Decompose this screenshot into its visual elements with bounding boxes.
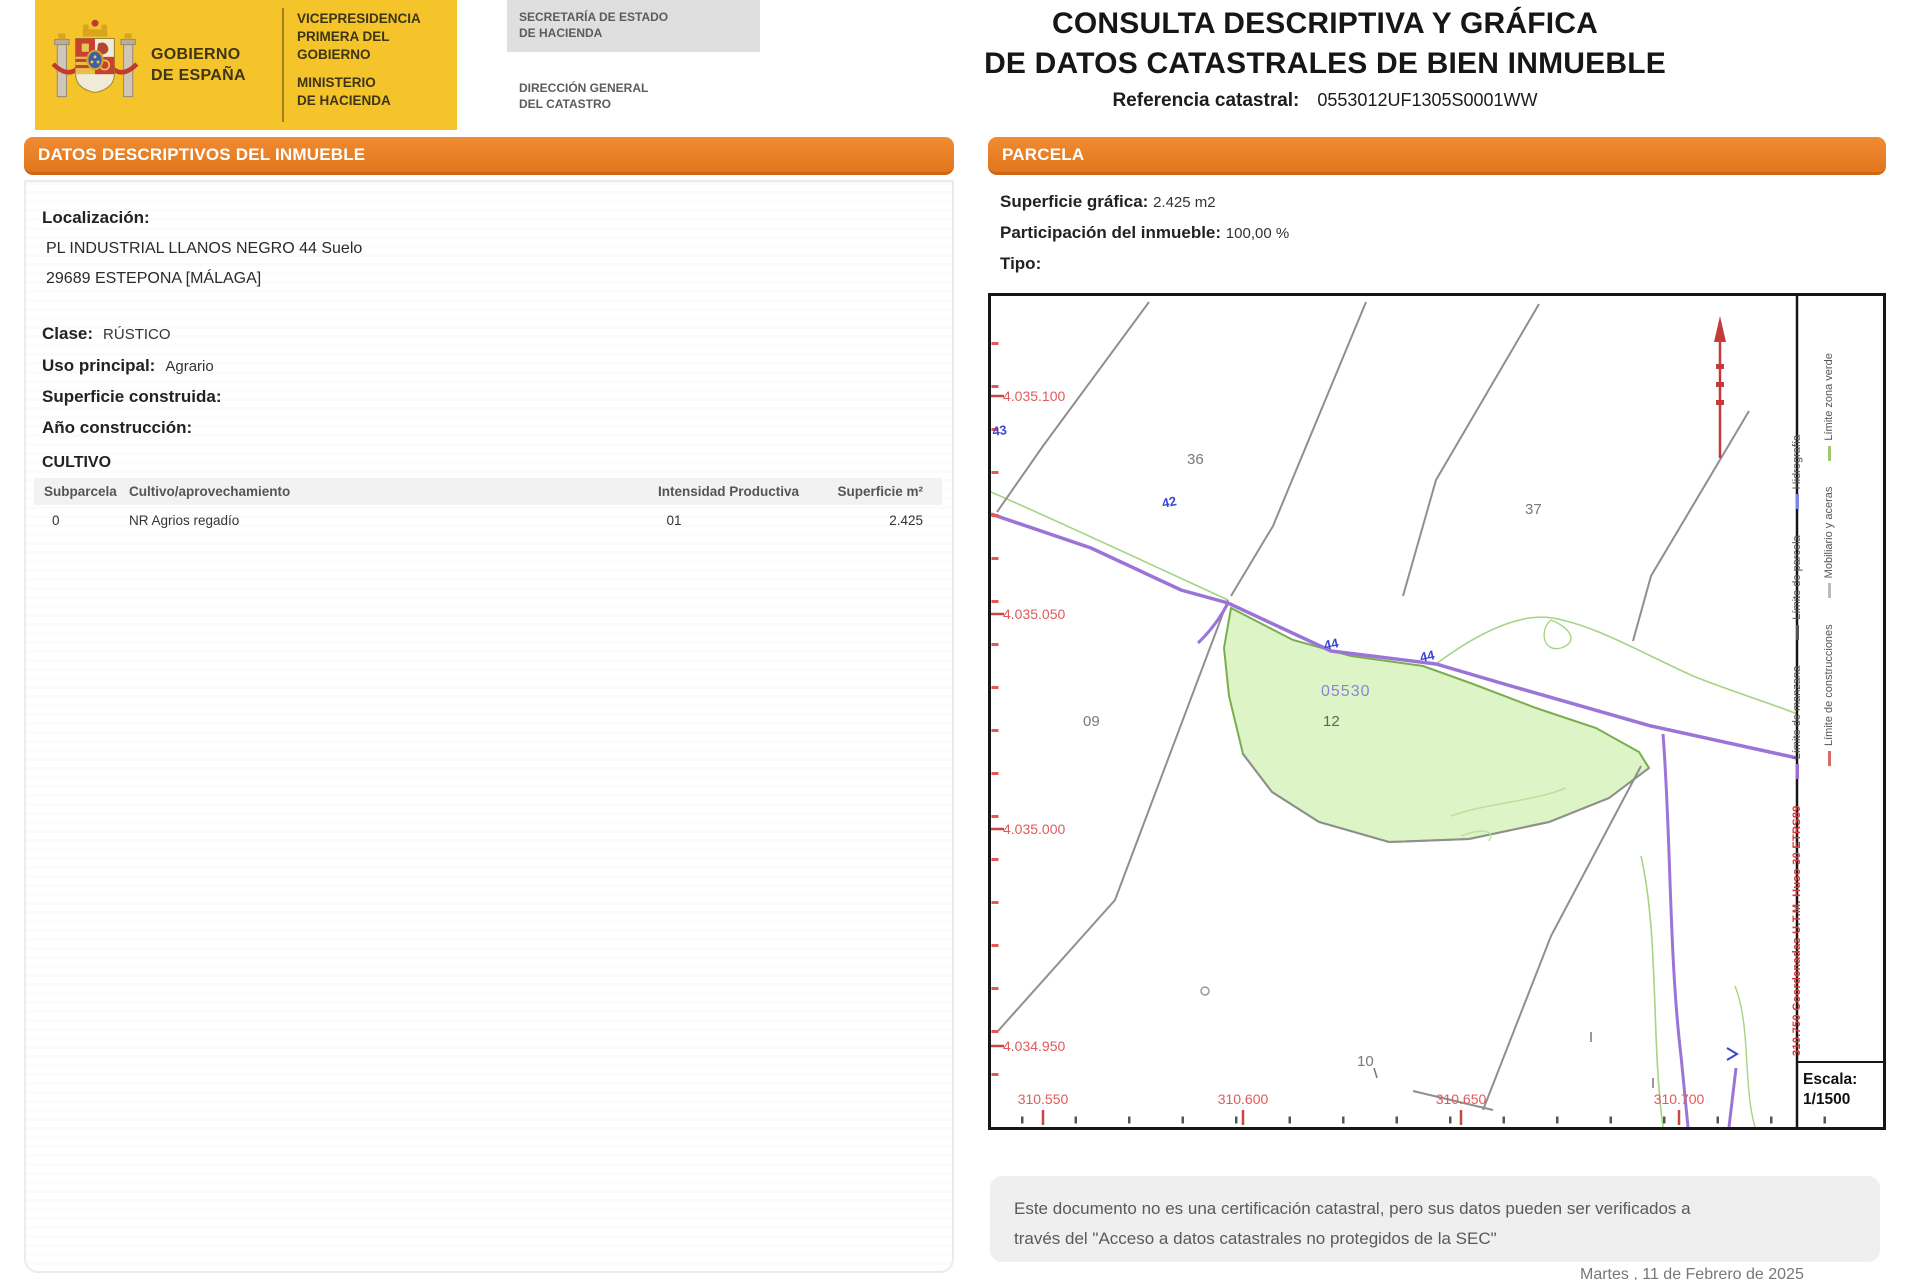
parcel-number-label: 37	[1525, 501, 1542, 518]
cadastral-document: GOBIERNO DE ESPAÑA VICEPRESIDENCIA PRIME…	[0, 0, 1920, 1280]
scale-value: 1/1500	[1803, 1090, 1857, 1110]
section-header-parcela: PARCELA	[988, 137, 1886, 175]
legend-swatch	[1828, 583, 1831, 598]
direccion-general-catastro-label: DIRECCIÓN GENERAL DEL CATASTRO	[519, 80, 648, 112]
legend-swatch	[1828, 751, 1831, 766]
disclaimer-box: Este documento no es una certificación c…	[990, 1176, 1880, 1262]
disclaimer-line-1: Este documento no es una certificación c…	[1014, 1194, 1856, 1224]
scale-indicator: Escala: 1/1500	[1803, 1070, 1857, 1110]
legend-item: Límite de construcciones	[1823, 624, 1835, 766]
flow-arrow-icon	[1727, 1048, 1737, 1060]
uso-principal-field: Uso principal:Agrario	[42, 356, 214, 376]
address-line-1: PL INDUSTRIAL LLANOS NEGRO 44 Suelo	[46, 240, 362, 258]
boundary-line	[1231, 302, 1366, 596]
green-zone-line	[1641, 856, 1663, 1127]
ministerio-label: MINISTERIO DE HACIENDA	[297, 74, 391, 110]
boundary-line	[1633, 411, 1749, 641]
tipo-field: Tipo:	[1000, 254, 1041, 274]
green-zone-line	[991, 492, 1228, 600]
clase-value: RÚSTICO	[103, 326, 171, 343]
superficie-grafica-field: Superficie gráfica: 2.425 m2	[1000, 192, 1216, 212]
legend-item: Límite zona verde	[1823, 353, 1835, 460]
col-header-cultivo: Cultivo/aprovechamiento	[129, 484, 549, 499]
legend-item: Mobiliario y aceras	[1823, 487, 1835, 599]
col-header-subparcela: Subparcela	[34, 484, 129, 499]
x-coordinate-label: 310.650	[1436, 1091, 1487, 1107]
street-number-label: 43	[991, 422, 1007, 439]
road-line	[1663, 734, 1688, 1127]
gobierno-espana-label: GOBIERNO DE ESPAÑA	[151, 44, 246, 86]
document-title: CONSULTA DESCRIPTIVA Y GRÁFICA DE DATOS …	[940, 4, 1710, 84]
x-coordinate-label: 310.700	[1654, 1091, 1705, 1107]
legend-item: Hidrografía	[1791, 435, 1803, 509]
referencia-catastral-value: 0553012UF1305S0001WW	[1317, 90, 1537, 110]
x-coordinate-label: 310.600	[1218, 1091, 1269, 1107]
street-number-label: 44	[1419, 647, 1437, 665]
spain-coat-of-arms-icon	[49, 13, 141, 115]
cell-subparcela: 0	[34, 513, 129, 528]
section-header-datos-descriptivos: DATOS DESCRIPTIVOS DEL INMUEBLE	[24, 137, 954, 175]
referencia-catastral: Referencia catastral:0553012UF1305S0001W…	[940, 90, 1710, 112]
legend-item: Límite de manzana	[1791, 666, 1803, 780]
government-logo: GOBIERNO DE ESPAÑA VICEPRESIDENCIA PRIME…	[35, 0, 457, 130]
superficie-construida-field: Superficie construida:	[42, 387, 231, 407]
uso-principal-value: Agrario	[165, 358, 213, 375]
legend-swatch	[1796, 764, 1799, 779]
anio-construccion-field: Año construcción:	[42, 418, 202, 438]
cadastral-map: 4.035.100 4.035.050 4.035.000 4.034.950 …	[988, 293, 1886, 1130]
parcel-number-label: 36	[1187, 451, 1204, 468]
superficie-grafica-value: 2.425 m2	[1153, 194, 1216, 211]
north-arrow-icon	[1714, 316, 1726, 458]
secretaria-estado-label: SECRETARÍA DE ESTADO DE HACIENDA	[507, 0, 760, 52]
participacion-value: 100,00 %	[1226, 225, 1289, 242]
table-row: 0 NR Agrios regadío 01 2.425	[34, 505, 942, 535]
datos-descriptivos-panel: Localización: PL INDUSTRIAL LLANOS NEGRO…	[24, 180, 954, 1273]
cell-cultivo: NR Agrios regadío	[129, 513, 549, 528]
vicepresidencia-label: VICEPRESIDENCIA PRIMERA DEL GOBIERNO	[297, 10, 457, 64]
map-canvas: 4.035.100 4.035.050 4.035.000 4.034.950 …	[991, 296, 1883, 1127]
legend-item: Límite de parcela	[1791, 535, 1803, 639]
street-number-label: 44	[1323, 635, 1341, 653]
cell-superficie: 2.425	[799, 513, 927, 528]
col-header-intensidad: Intensidad Productiva	[549, 484, 799, 499]
document-date: Martes , 11 de Febrero de 2025	[1580, 1266, 1804, 1280]
cultivo-title: CULTIVO	[42, 454, 111, 472]
localizacion-label: Localización:	[42, 208, 150, 228]
street-number-label: 42	[1161, 493, 1178, 511]
boundary-line	[998, 600, 1228, 1031]
referencia-catastral-label: Referencia catastral:	[1112, 90, 1299, 111]
disclaimer-line-2: través del "Acceso a datos catastrales n…	[1014, 1224, 1856, 1254]
participacion-field: Participación del inmueble: 100,00 %	[1000, 223, 1289, 243]
y-coordinate-label: 4.034.950	[1003, 1038, 1065, 1054]
utm-note: 310.750 Coordenadas U.T.M. Huso 30 ETRS8…	[1791, 805, 1803, 1056]
address-line-2: 29689 ESTEPONA [MÁLAGA]	[46, 270, 261, 288]
boundary-line	[997, 302, 1149, 512]
legend-swatch	[1796, 625, 1799, 640]
map-legend-column-2: Límite de construcciones Mobiliario y ac…	[1819, 356, 1839, 766]
map-legend-column-1: 310.750 Coordenadas U.T.M. Huso 30 ETRS8…	[1787, 356, 1807, 1056]
cell-intensidad: 01	[549, 513, 799, 528]
cultivo-table-header: Subparcela Cultivo/aprovechamiento Inten…	[34, 478, 942, 505]
scale-label: Escala:	[1803, 1070, 1857, 1090]
manzana-ref-label: 05530	[1321, 683, 1371, 700]
parcel-number-label: 09	[1083, 713, 1100, 730]
parcel-number-label: 12	[1323, 713, 1340, 730]
y-coordinate-label: 4.035.000	[1003, 821, 1065, 837]
logo-divider	[282, 8, 284, 122]
boundary-line	[1403, 304, 1539, 596]
legend-swatch	[1828, 446, 1831, 461]
x-coordinate-label: 310.550	[1018, 1091, 1069, 1107]
cultivo-table: Subparcela Cultivo/aprovechamiento Inten…	[34, 478, 942, 535]
y-coordinate-label: 4.035.050	[1003, 606, 1065, 622]
col-header-superficie: Superficie m²	[799, 484, 927, 499]
y-coordinate-label: 4.035.100	[1003, 388, 1065, 404]
parcel-number-label: 10	[1357, 1053, 1374, 1070]
legend-swatch	[1796, 494, 1799, 509]
clase-field: Clase:RÚSTICO	[42, 324, 171, 344]
